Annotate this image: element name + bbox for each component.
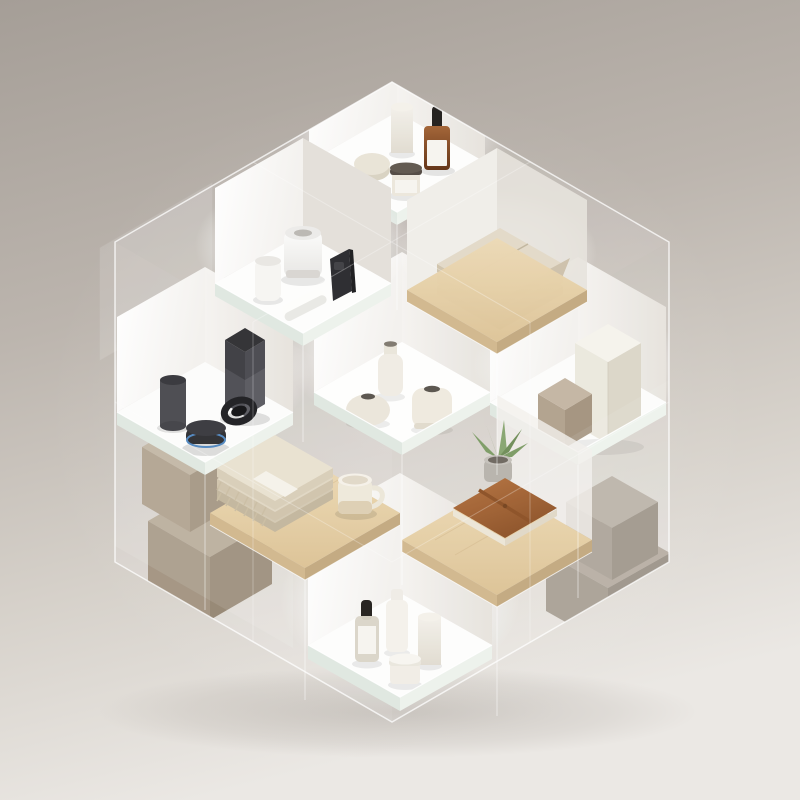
scene-canvas: Isometric glass display cubes with lifes…: [0, 0, 800, 800]
render-stage: Isometric glass display cubes with lifes…: [0, 0, 800, 800]
